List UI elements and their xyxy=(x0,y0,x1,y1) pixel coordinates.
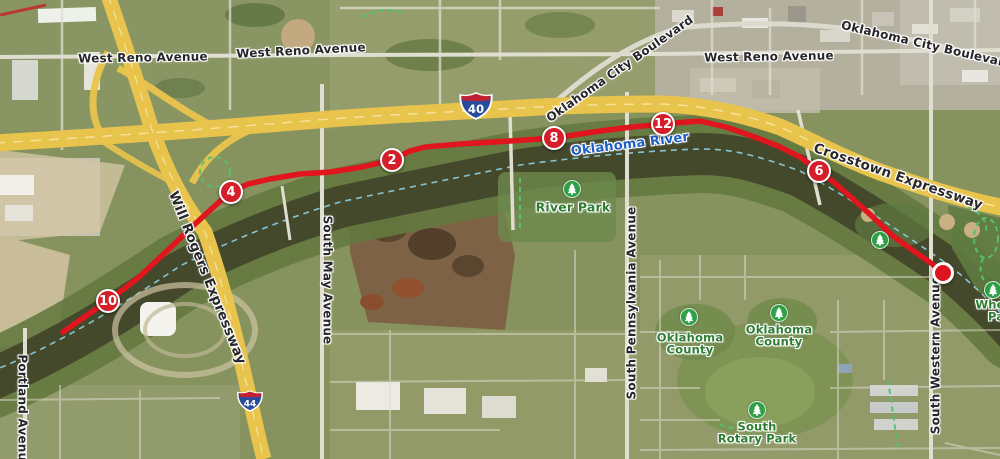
park-label-line: South xyxy=(718,421,797,433)
interstate-44-shield: 44 xyxy=(237,390,263,416)
park-tree-icon[interactable] xyxy=(770,304,788,322)
park-label-line: Wheeler xyxy=(975,299,1000,311)
park-tree-icon[interactable] xyxy=(680,308,698,326)
park-name-label: SouthRotary Park xyxy=(718,421,797,446)
park-tree-icon[interactable] xyxy=(563,180,581,198)
park-name-label: OklahomaCounty xyxy=(657,332,724,357)
map-annotations-layer: West Reno AvenueWest Reno AvenueWest Ren… xyxy=(0,0,1000,459)
street-name-label: West Reno Avenue xyxy=(704,49,834,64)
svg-text:44: 44 xyxy=(244,399,257,409)
street-name-label: West Reno Avenue xyxy=(78,50,208,65)
park-name-label: WheelerPark xyxy=(975,299,1000,324)
mile-marker-2[interactable]: 2 xyxy=(380,148,404,172)
satellite-map-canvas[interactable]: West Reno AvenueWest Reno AvenueWest Ren… xyxy=(0,0,1000,459)
mile-marker-4[interactable]: 4 xyxy=(219,180,243,204)
street-name-label: South May Avenue xyxy=(321,216,334,345)
park-name-label: River Park xyxy=(536,200,611,214)
park-label-line: Oklahoma xyxy=(657,332,724,344)
park-tree-icon[interactable] xyxy=(748,401,766,419)
mile-marker-8[interactable]: 8 xyxy=(542,126,566,150)
park-tree-icon[interactable] xyxy=(871,231,889,249)
street-name-label: Oklahoma City Boulevard xyxy=(544,13,695,124)
park-label-line: County xyxy=(746,336,813,348)
street-name-label: Oklahoma City Boulevard xyxy=(840,19,1000,71)
street-name-label: Crosstown Expressway xyxy=(812,141,985,213)
street-name-label: West Reno Avenue xyxy=(236,41,366,61)
mile-marker-6[interactable]: 6 xyxy=(807,159,831,183)
mile-marker-10[interactable]: 10 xyxy=(96,289,120,313)
park-tree-icon[interactable] xyxy=(984,281,1000,299)
interstate-40-shield: 40 xyxy=(459,92,493,124)
park-label-line: Park xyxy=(975,311,1000,323)
mile-marker-12[interactable]: 12 xyxy=(651,112,675,136)
street-name-label: South Pennsylvania Avenue xyxy=(626,207,639,400)
street-name-label: South Western Avenue xyxy=(930,276,943,435)
park-label-line: Oklahoma xyxy=(746,324,813,336)
svg-text:40: 40 xyxy=(468,102,484,116)
street-name-label: Will Rogers Expressway xyxy=(166,189,249,366)
route-endpoint-dot[interactable] xyxy=(932,262,954,284)
street-name-label: Portland Avenue xyxy=(16,354,29,459)
river-name-label: Oklahoma River xyxy=(570,131,690,159)
park-label-line: Rotary Park xyxy=(718,433,797,445)
park-name-label: OklahomaCounty xyxy=(746,324,813,349)
park-label-line: County xyxy=(657,344,724,356)
park-label-line: River Park xyxy=(536,200,611,214)
